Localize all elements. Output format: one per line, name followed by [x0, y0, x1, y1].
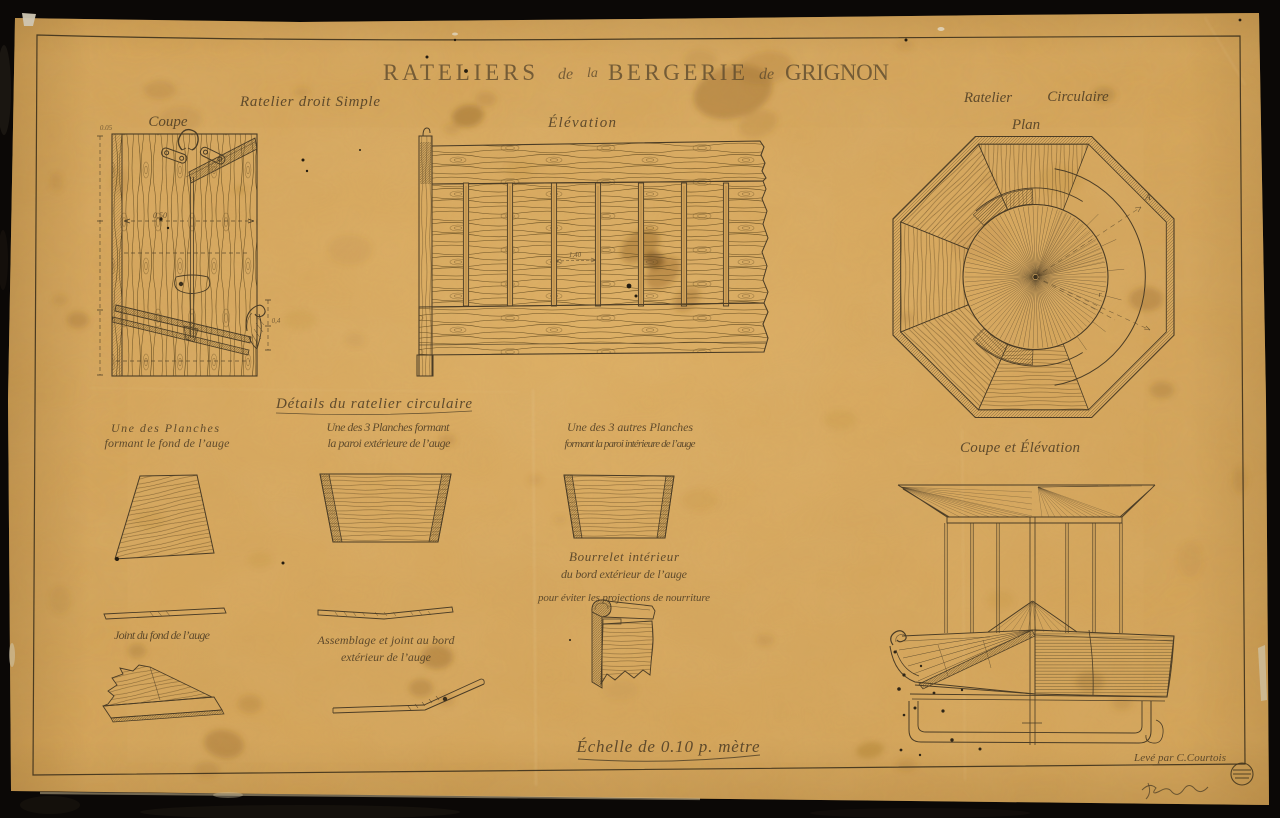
svg-text:de: de: [558, 66, 573, 83]
svg-text:RATELIERS: RATELIERS: [383, 60, 535, 85]
svg-text:Joint du fond de l’auge: Joint du fond de l’auge: [114, 628, 211, 642]
svg-text:BERGERIE: BERGERIE: [608, 60, 745, 85]
svg-text:extérieur de l’auge: extérieur de l’auge: [341, 650, 432, 664]
svg-text:Ratelier droit Simple: Ratelier droit Simple: [239, 94, 380, 110]
svg-text:Une des 3 Planches formant: Une des 3 Planches formant: [327, 420, 451, 434]
svg-text:Échelle de 0.10 p. mètre: Échelle de 0.10 p. mètre: [576, 737, 760, 756]
svg-text:la: la: [587, 66, 598, 81]
svg-text:Une des 3 autres Planches: Une des 3 autres Planches: [567, 420, 693, 434]
svg-text:la paroi extérieure de l’auge: la paroi extérieure de l’auge: [328, 436, 452, 450]
svg-text:Assemblage et joint au bord: Assemblage et joint au bord: [317, 633, 456, 647]
svg-text:Coupe et Élévation: Coupe et Élévation: [960, 439, 1080, 456]
svg-text:A: A: [1144, 192, 1151, 202]
svg-text:Bourrelet intérieur: Bourrelet intérieur: [569, 549, 680, 564]
svg-text:formant la paroi intérieure de: formant la paroi intérieure de l’auge: [565, 438, 696, 450]
svg-text:Détails du ratelier circulaire: Détails du ratelier circulaire: [275, 396, 472, 412]
svg-text:du bord extérieur de l’auge: du bord extérieur de l’auge: [561, 567, 688, 581]
svg-text:0,4: 0,4: [272, 317, 281, 325]
svg-text:formant le fond de l’auge: formant le fond de l’auge: [105, 436, 231, 450]
svg-text:Coupe: Coupe: [148, 114, 188, 130]
svg-text:0.05: 0.05: [100, 124, 113, 132]
svg-text:de: de: [759, 66, 774, 83]
svg-text:GRIGNON: GRIGNON: [785, 60, 889, 85]
svg-text:pour éviter les projections de: pour éviter les projections de nourritur…: [537, 592, 710, 604]
svg-text:Circulaire: Circulaire: [1047, 89, 1109, 105]
svg-text:Ratelier: Ratelier: [963, 90, 1012, 106]
svg-text:1,40: 1,40: [569, 251, 582, 259]
svg-text:Levé par C.Courtois: Levé par C.Courtois: [1133, 752, 1226, 764]
svg-text:Plan: Plan: [1011, 117, 1040, 133]
